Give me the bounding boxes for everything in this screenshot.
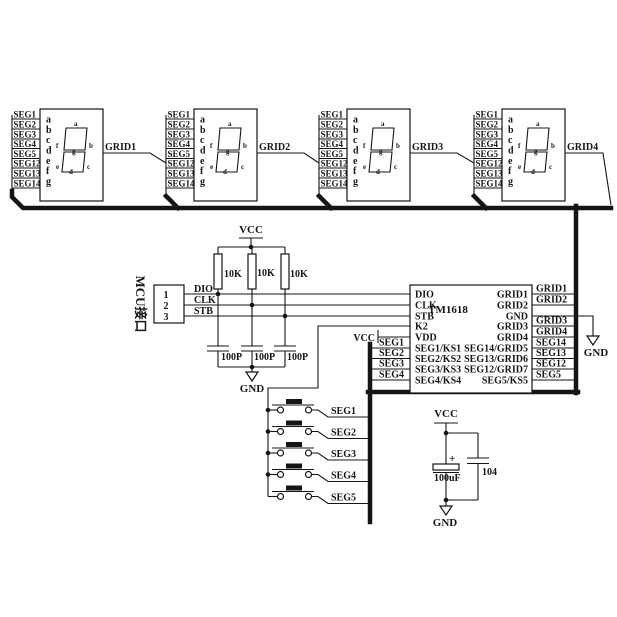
tm1618-schematic: SEG1 SEG2 SEG3 SEG4 SEG5 SEG12 SEG13 SEG… bbox=[0, 0, 617, 617]
seg-wire-label: SEG5 bbox=[321, 149, 344, 159]
display-pin-letter: d bbox=[353, 146, 359, 157]
grid-wire-label: GRID3 bbox=[412, 142, 443, 153]
seg-wire-label: SEG12 bbox=[168, 159, 196, 169]
display-pin-letter: c bbox=[353, 135, 358, 146]
segment-letter: b bbox=[89, 142, 93, 150]
segment-letter: g bbox=[534, 148, 538, 156]
electrolytic-cap-value: 100uF bbox=[434, 473, 461, 484]
resistor-10k-2 bbox=[248, 254, 256, 289]
mcu-interface: MCU接口 1 2 3 DIO CLK STB bbox=[133, 275, 410, 332]
segment-letter: a bbox=[536, 120, 540, 128]
button-seg-label: SEG1 bbox=[331, 406, 356, 417]
segment-letter: g bbox=[72, 148, 76, 156]
chip-pin: SEG13/GRID6 bbox=[464, 354, 528, 365]
schematic-page: SEG1 SEG2 SEG3 SEG4 SEG5 SEG12 SEG13 SEG… bbox=[0, 0, 617, 617]
seg-wire-label: SEG4 bbox=[476, 139, 499, 149]
mcu-pin-number: 3 bbox=[164, 312, 169, 323]
button-cap[interactable] bbox=[286, 464, 302, 469]
grid-wire-label: GRID3 bbox=[536, 316, 567, 327]
segment-letter: a bbox=[381, 120, 385, 128]
seg-wire-label: SEG3 bbox=[14, 130, 37, 140]
chip-pin: SEG12/GRID7 bbox=[464, 365, 528, 376]
display-pin-letter: g bbox=[46, 177, 51, 188]
gnd-arrow-power bbox=[440, 506, 452, 515]
electrolytic-cap-plate bbox=[433, 464, 459, 470]
seg-wire-label: SEG3 bbox=[379, 359, 404, 370]
segment-letter: c bbox=[549, 163, 552, 171]
display-pin-letter: c bbox=[508, 135, 513, 146]
seg-wire-label: SEG1 bbox=[168, 110, 191, 120]
segment-letter: d bbox=[69, 168, 73, 176]
seg-wire-label: SEG2 bbox=[476, 120, 499, 130]
segment-letter: e bbox=[210, 163, 213, 171]
ceramic-cap-value: 104 bbox=[482, 467, 497, 478]
seg-wire-label: SEG12 bbox=[14, 159, 42, 169]
power-decoupling: VCC + 100uF 104 GND bbox=[433, 408, 497, 529]
chip-left-seg-wires: SEG1 SEG2 SEG3 SEG4 bbox=[370, 338, 410, 381]
display-pin-letter: c bbox=[200, 135, 205, 146]
segment-letter: a bbox=[228, 120, 232, 128]
grid-wire-label: GRID2 bbox=[536, 295, 567, 306]
seg-wire-label: SEG3 bbox=[476, 130, 499, 140]
segment-letter: g bbox=[379, 148, 383, 156]
seg-wire-label: SEG13 bbox=[168, 169, 196, 179]
seg-wire-label: SEG13 bbox=[476, 169, 504, 179]
seg-wire-label: SEG13 bbox=[321, 169, 349, 179]
gnd-label-chip: GND bbox=[584, 347, 609, 359]
grid-wire-label: GRID2 bbox=[259, 142, 290, 153]
seg-wire-label: SEG2 bbox=[168, 120, 191, 130]
seg-wire-label: SEG1 bbox=[476, 110, 499, 120]
grid-wire-label: GRID4 bbox=[567, 142, 598, 153]
signal-label-dio: DIO bbox=[194, 284, 213, 295]
display-pin-letter: a bbox=[508, 115, 513, 126]
chip-pin: SEG14/GRID5 bbox=[464, 344, 528, 355]
button-row-3[interactable]: SEG3 bbox=[266, 442, 371, 460]
grid-wire-label: GRID1 bbox=[105, 142, 136, 153]
gnd-label-filter: GND bbox=[240, 383, 265, 395]
vcc-label-pullups: VCC bbox=[239, 224, 263, 236]
seg-wire-label: SEG13 bbox=[536, 348, 566, 359]
seg-wire-label: SEG1 bbox=[379, 338, 404, 349]
seg-wire-label: SEG2 bbox=[379, 348, 404, 359]
seg-wire-label: SEG4 bbox=[168, 139, 191, 149]
seven-seg-display-1: SEG1 SEG2 SEG3 SEG4 SEG5 SEG12 SEG13 SEG… bbox=[12, 109, 103, 201]
chip-pin: GRID3 bbox=[497, 322, 528, 333]
tm1618-chip: TM1618 DIO CLK STB K2 VDD SEG1/KS1 SEG2/… bbox=[410, 285, 532, 393]
segment-letter: c bbox=[394, 163, 397, 171]
button-cap[interactable] bbox=[286, 442, 302, 447]
seg-wire-label: SEG1 bbox=[321, 110, 344, 120]
button-seg-label: SEG2 bbox=[331, 428, 356, 439]
button-row-1[interactable]: SEG1 bbox=[266, 399, 371, 417]
resistor-value: 10K bbox=[257, 268, 275, 279]
chip-pin: GRID4 bbox=[497, 333, 528, 344]
chip-pin: VDD bbox=[415, 333, 437, 344]
chip-pin: SEG5/KS5 bbox=[482, 376, 528, 387]
mcu-connector-box bbox=[154, 285, 184, 323]
chip-right-wires: GRID1 GRID2 GRID3 GRID4 SEG14 SEG13 SEG1… bbox=[532, 284, 608, 381]
display-pin-letter: a bbox=[353, 115, 358, 126]
resistor-10k-1 bbox=[214, 254, 222, 289]
segment-letter: e bbox=[363, 163, 366, 171]
segment-letter: a bbox=[74, 120, 78, 128]
segment-letter: d bbox=[223, 168, 227, 176]
resistor-value: 10K bbox=[290, 269, 308, 280]
seg-wire-label: SEG5 bbox=[168, 149, 191, 159]
seg-wire-label: SEG14 bbox=[476, 179, 504, 189]
button-cap[interactable] bbox=[286, 486, 302, 491]
display-pin-letter: c bbox=[46, 135, 51, 146]
segment-letter: g bbox=[226, 148, 230, 156]
mcu-pin-number: 1 bbox=[164, 290, 169, 301]
seg-wire-label: SEG12 bbox=[536, 359, 566, 370]
resistor-10k-3 bbox=[281, 254, 289, 289]
gnd-arrow-chip bbox=[587, 336, 599, 345]
display-pin-letter: d bbox=[508, 146, 514, 157]
button-seg-label: SEG5 bbox=[331, 493, 356, 504]
cap-value: 100P bbox=[221, 352, 242, 363]
seg-wire-label: SEG2 bbox=[14, 120, 37, 130]
button-cap[interactable] bbox=[286, 399, 302, 404]
segment-letter: c bbox=[241, 163, 244, 171]
display-pin-letter: d bbox=[46, 146, 52, 157]
display-pin-letter: a bbox=[46, 115, 51, 126]
chip-pin: SEG4/KS4 bbox=[415, 376, 461, 387]
segment-letter: c bbox=[87, 163, 90, 171]
seven-seg-display-3: SEG1 SEG2 SEG3 SEG4 SEG5 SEG12 SEG13 SEG… bbox=[319, 109, 410, 201]
vcc-label-power: VCC bbox=[434, 408, 458, 420]
mcu-interface-label: MCU接口 bbox=[133, 275, 148, 332]
seven-seg-display-4: SEG1 SEG2 SEG3 SEG4 SEG5 SEG12 SEG13 SEG… bbox=[474, 109, 565, 201]
segment-letter: e bbox=[56, 163, 59, 171]
seg-wire-label: SEG14 bbox=[321, 179, 349, 189]
seg-wire-label: SEG4 bbox=[14, 139, 37, 149]
display-pin-letter: d bbox=[200, 146, 206, 157]
segment-letter: b bbox=[243, 142, 247, 150]
button-cap[interactable] bbox=[286, 421, 302, 426]
chip-pin: K2 bbox=[415, 322, 428, 333]
chip-pin: DIO bbox=[415, 290, 434, 301]
chip-pin: CLK bbox=[415, 301, 437, 312]
seg-wire-label: SEG13 bbox=[14, 169, 42, 179]
grid-wire-label: GRID4 bbox=[536, 327, 567, 338]
button-seg-label: SEG4 bbox=[331, 471, 356, 482]
button-row-2[interactable]: SEG2 bbox=[266, 421, 371, 439]
segment-letter: d bbox=[531, 168, 535, 176]
seg-wire-label: SEG12 bbox=[476, 159, 504, 169]
chip-pin: SEG1/KS1 bbox=[415, 344, 461, 355]
chip-pin: SEG2/KS2 bbox=[415, 354, 461, 365]
seg-wire-label: SEG5 bbox=[476, 149, 499, 159]
button-seg-label: SEG3 bbox=[331, 449, 356, 460]
seg-wire-label: SEG4 bbox=[321, 139, 344, 149]
signal-label-stb: STB bbox=[194, 306, 213, 317]
grid-wire-label: GRID1 bbox=[536, 284, 567, 295]
resistor-value: 10K bbox=[224, 269, 242, 280]
display-pin-letter: g bbox=[508, 177, 513, 188]
display-pin-letter: g bbox=[353, 177, 358, 188]
chip-pin: SEG3/KS3 bbox=[415, 365, 461, 376]
seg-wire-label: SEG2 bbox=[321, 120, 344, 130]
segment-letter: d bbox=[376, 168, 380, 176]
button-row-5[interactable]: SEG5 bbox=[268, 486, 371, 504]
vcc-label-vdd: VCC bbox=[353, 333, 375, 344]
seg-wire-label: SEG5 bbox=[14, 149, 37, 159]
cap-value: 100P bbox=[287, 352, 308, 363]
polarity-plus: + bbox=[449, 453, 455, 465]
seg-wire-label: SEG12 bbox=[321, 159, 349, 169]
seg-wire-label: SEG5 bbox=[536, 370, 561, 381]
segment-letter: b bbox=[551, 142, 555, 150]
seg-wire-label: SEG14 bbox=[536, 338, 566, 349]
seven-seg-display-2: SEG1 SEG2 SEG3 SEG4 SEG5 SEG12 SEG13 SEG… bbox=[166, 109, 257, 201]
seg-wire-label: SEG14 bbox=[168, 179, 196, 189]
seg-wire-label: SEG3 bbox=[168, 130, 191, 140]
seg-wire-label: SEG4 bbox=[379, 370, 404, 381]
button-row-4[interactable]: SEG4 bbox=[266, 464, 371, 482]
cap-value: 100P bbox=[254, 352, 275, 363]
chip-pin: GRID1 bbox=[497, 290, 528, 301]
chip-pin: GRID2 bbox=[497, 301, 528, 312]
signal-label-clk: CLK bbox=[194, 295, 216, 306]
filter-cap-network: 100P 100P 100P GND bbox=[207, 294, 308, 395]
segment-letter: b bbox=[396, 142, 400, 150]
seg-wire-label: SEG3 bbox=[321, 130, 344, 140]
segment-letter: e bbox=[518, 163, 521, 171]
display-pin-letter: a bbox=[200, 115, 205, 126]
gnd-label-power: GND bbox=[433, 517, 458, 529]
pullup-network: VCC 10K 10K 10K bbox=[214, 224, 308, 316]
seg-wire-label: SEG1 bbox=[14, 110, 37, 120]
gnd-arrow-filter bbox=[246, 372, 258, 381]
seg-wire-label: SEG14 bbox=[14, 179, 42, 189]
display-pin-letter: g bbox=[200, 177, 205, 188]
mcu-pin-number: 2 bbox=[164, 301, 169, 312]
